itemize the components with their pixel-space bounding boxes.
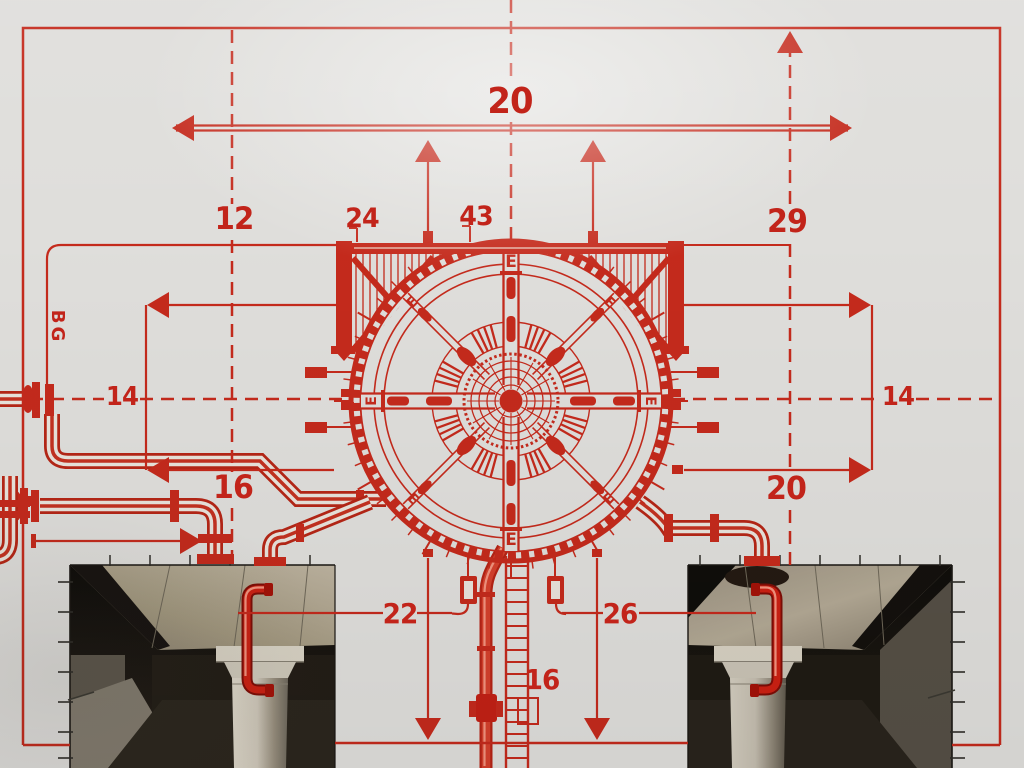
wheel-marker: E (505, 530, 517, 550)
dim-upper-right: 29 (767, 205, 807, 237)
dim-lower-right: 26 (603, 600, 638, 628)
dim-axis-right: 14 (882, 384, 914, 410)
dim-top-width: 20 (487, 84, 532, 120)
dim-lower-left: 22 (383, 600, 418, 628)
blueprint-scene: EEEEEEEE 20 12 24 43 29 BG 14 14 16 20 2… (0, 0, 1024, 768)
dim-upper-left: 12 (215, 204, 254, 235)
side-code: BG (48, 310, 66, 345)
dim-mid-right: 20 (766, 472, 806, 504)
wheel-marker: E (364, 396, 380, 406)
dim-beam-left: 24 (345, 205, 378, 232)
dim-shaft: 16 (525, 666, 560, 694)
dim-axis-left: 14 (106, 384, 138, 410)
turbine-wheel: EEEEEEEE (334, 241, 688, 578)
wheel-marker: E (642, 396, 658, 406)
right-niche (688, 555, 965, 768)
dim-mid-left: 16 (213, 471, 253, 503)
dim-beam-right: 43 (459, 203, 492, 230)
left-niche (58, 555, 335, 768)
wheel-marker: E (505, 252, 517, 272)
ladder-shaft (469, 548, 538, 768)
